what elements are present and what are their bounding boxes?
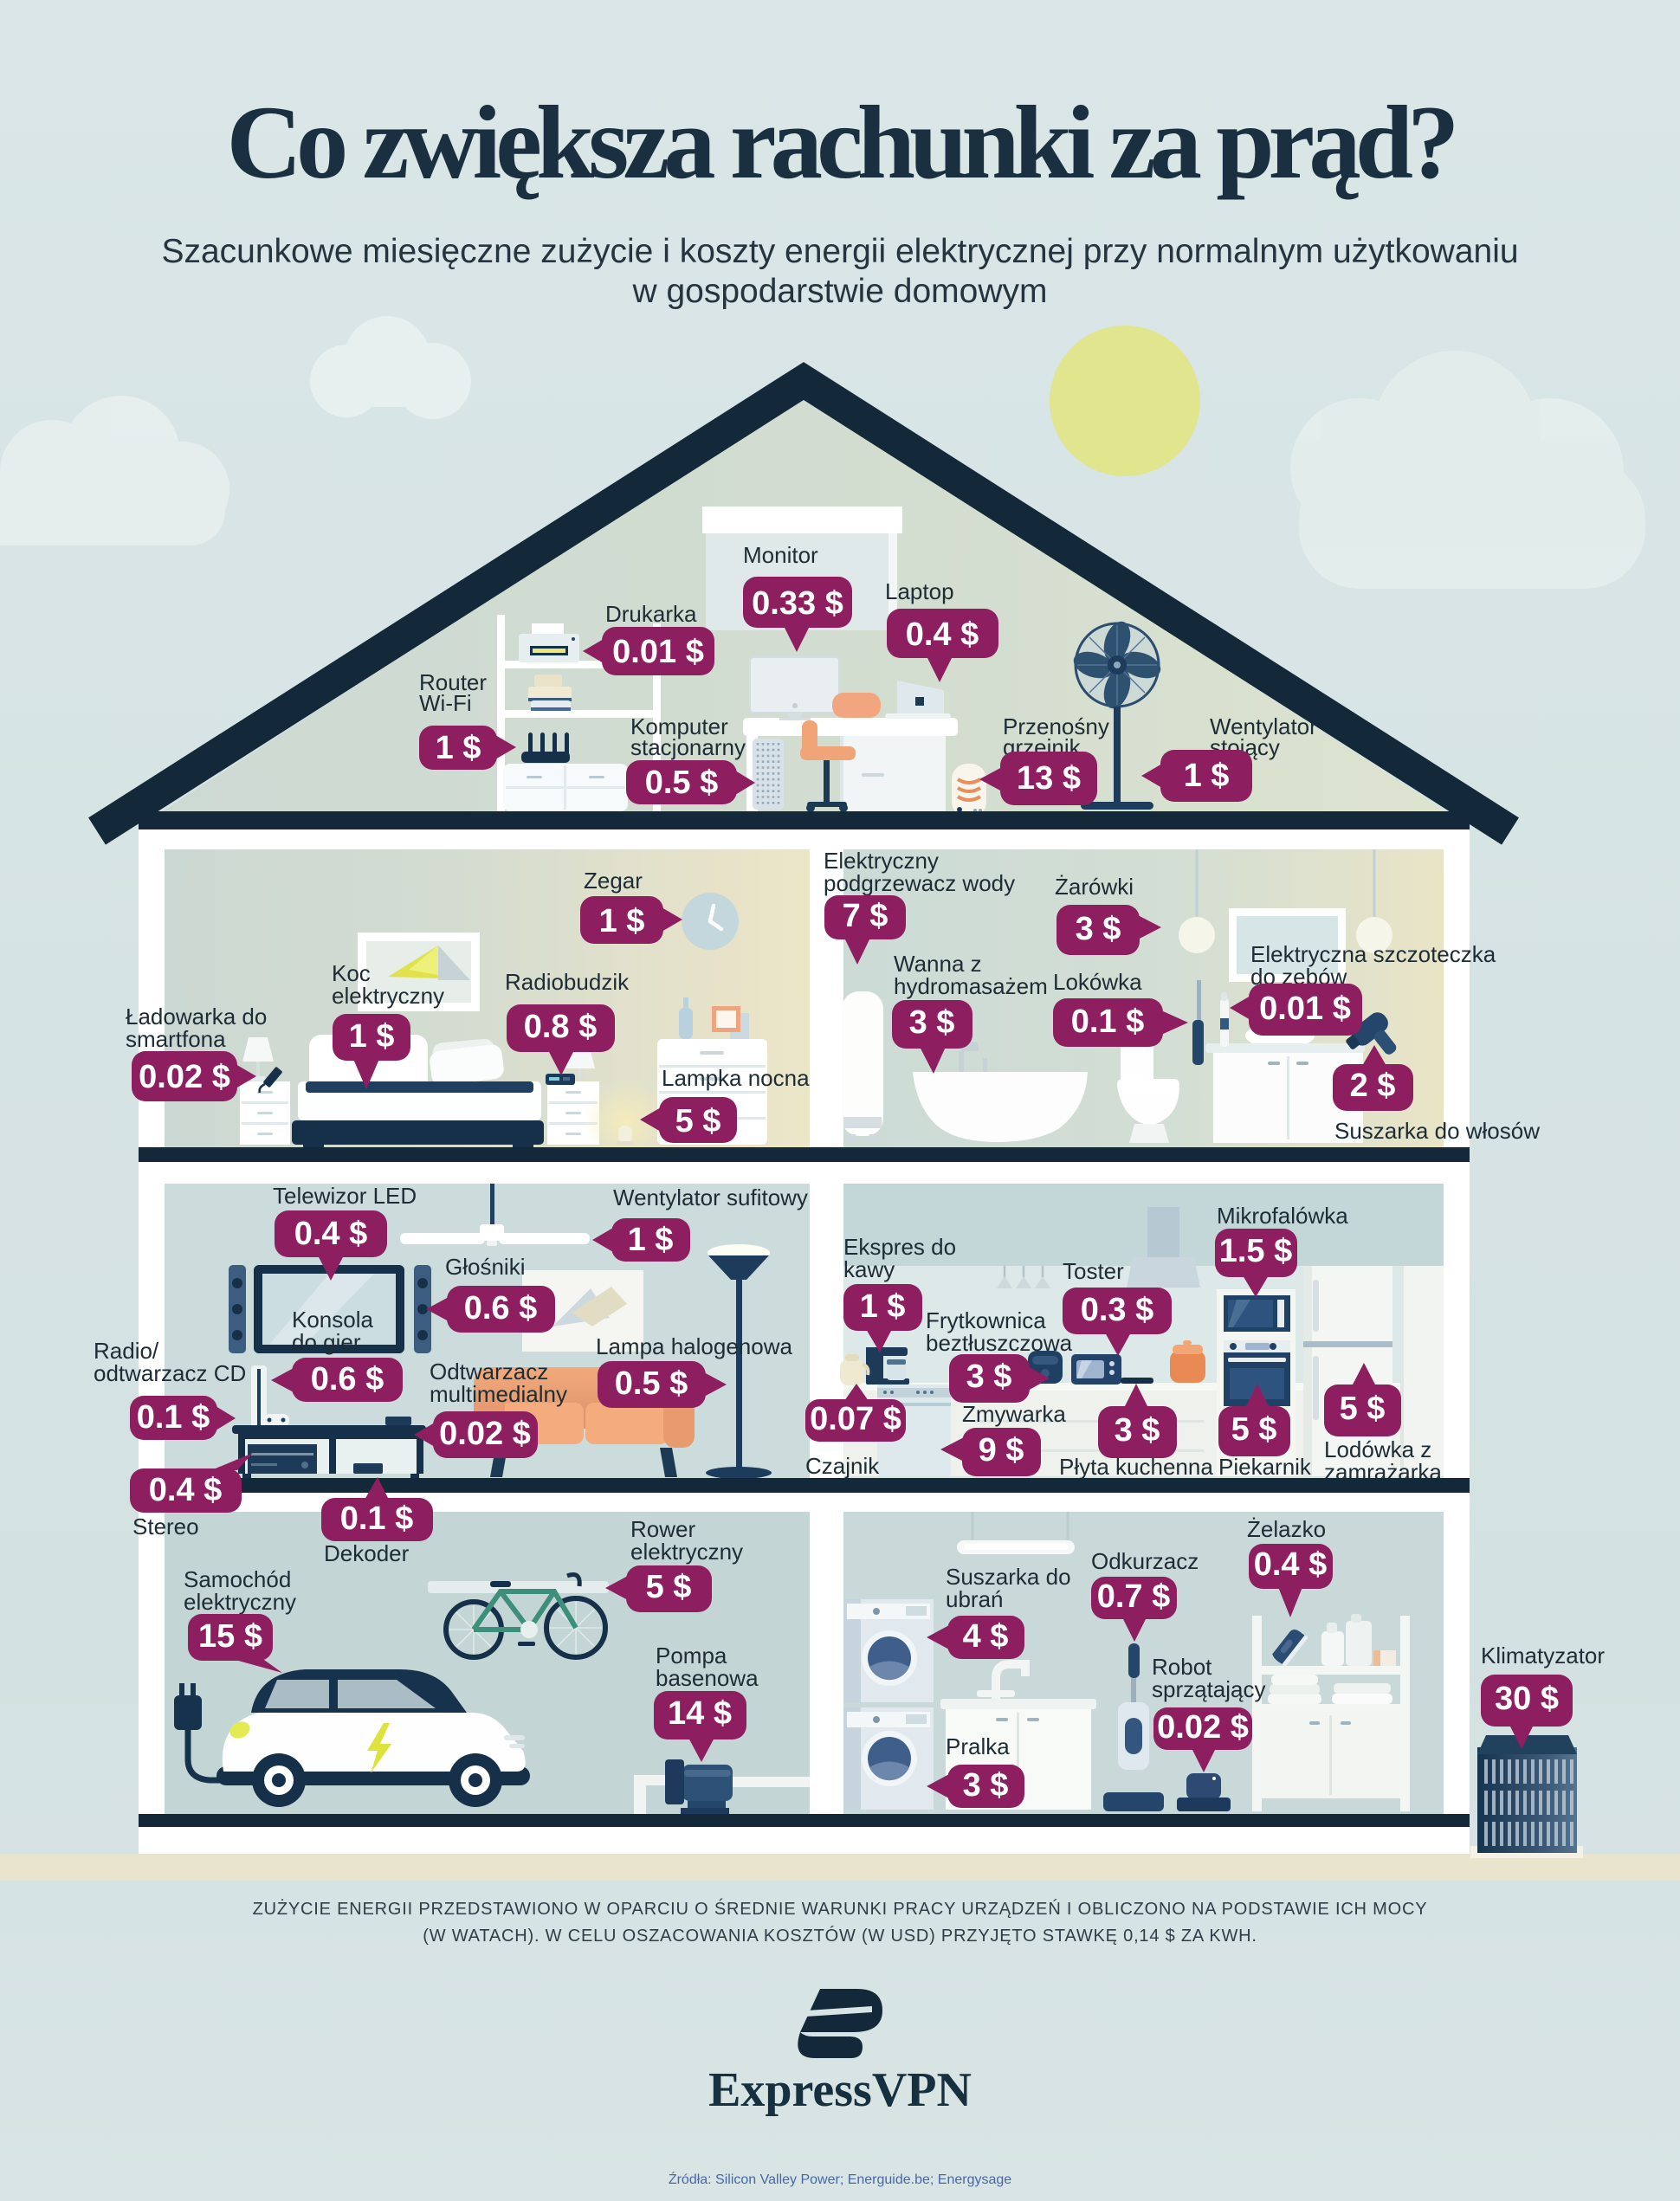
svg-text:Co zwiększa rachunki za prąd?: Co zwiększa rachunki za prąd? <box>226 85 1454 201</box>
svg-text:Lampa halogenowa: Lampa halogenowa <box>596 1333 792 1359</box>
svg-text:Lodówka zzamrażarką: Lodówka zzamrażarką <box>1324 1436 1442 1485</box>
svg-text:Laptop: Laptop <box>885 578 954 604</box>
svg-text:1 $: 1 $ <box>599 903 645 939</box>
svg-text:0.7 $: 0.7 $ <box>1097 1578 1171 1615</box>
svg-text:4 $: 4 $ <box>963 1618 1009 1655</box>
svg-text:Zmywarka: Zmywarka <box>962 1401 1066 1427</box>
svg-text:0.02 $: 0.02 $ <box>139 1059 230 1095</box>
svg-text:2 $: 2 $ <box>1350 1068 1396 1104</box>
svg-text:ZUŻYCIE ENERGII PRZEDSTAWIONO: ZUŻYCIE ENERGII PRZEDSTAWIONO W OPARCIU … <box>253 1898 1428 1919</box>
svg-text:0.4 $: 0.4 $ <box>294 1216 368 1252</box>
svg-text:0.02 $: 0.02 $ <box>1157 1709 1249 1746</box>
svg-text:7 $: 7 $ <box>843 898 888 934</box>
svg-text:9 $: 9 $ <box>979 1432 1024 1468</box>
svg-text:0.33 $: 0.33 $ <box>752 585 843 622</box>
svg-text:Drukarka: Drukarka <box>605 601 697 627</box>
svg-text:5 $: 5 $ <box>1231 1411 1277 1448</box>
svg-text:Telewizor LED: Telewizor LED <box>273 1183 417 1209</box>
svg-text:3 $: 3 $ <box>1076 911 1121 947</box>
svg-text:13 $: 13 $ <box>1017 760 1081 797</box>
svg-text:0.07 $: 0.07 $ <box>810 1401 901 1437</box>
svg-text:1 $: 1 $ <box>860 1288 906 1325</box>
svg-text:15 $: 15 $ <box>198 1618 262 1655</box>
svg-text:0.01 $: 0.01 $ <box>612 634 704 670</box>
svg-text:Źródła: Silicon Valley Power;: Źródła: Silicon Valley Power; Energuide.… <box>669 2171 1011 2187</box>
svg-text:Czajnik: Czajnik <box>805 1453 880 1479</box>
svg-text:5 $: 5 $ <box>675 1103 721 1139</box>
svg-text:Radiobudzik: Radiobudzik <box>505 969 630 995</box>
svg-text:3 $: 3 $ <box>966 1359 1012 1395</box>
svg-text:0.4 $: 0.4 $ <box>149 1472 223 1508</box>
svg-text:1.5 $: 1.5 $ <box>1219 1233 1293 1269</box>
svg-text:Żarówki: Żarówki <box>1055 874 1134 900</box>
svg-text:Pralka: Pralka <box>946 1733 1010 1759</box>
svg-text:Lokówka: Lokówka <box>1053 969 1142 995</box>
svg-text:0.5 $: 0.5 $ <box>645 765 719 801</box>
svg-text:0.4 $: 0.4 $ <box>906 616 979 653</box>
svg-text:Klimatyzator: Klimatyzator <box>1481 1643 1605 1668</box>
svg-text:Wentylator sufitowy: Wentylator sufitowy <box>613 1184 808 1210</box>
svg-text:Toster: Toster <box>1063 1258 1124 1284</box>
svg-text:Płyta kuchenna: Płyta kuchenna <box>1059 1454 1213 1480</box>
svg-text:5 $: 5 $ <box>1340 1391 1386 1427</box>
svg-text:Monitor: Monitor <box>743 542 818 568</box>
svg-text:Samochódelektryczny: Samochódelektryczny <box>184 1566 296 1615</box>
svg-text:Szacunkowe miesięczne zużycie: Szacunkowe miesięczne zużycie i koszty e… <box>161 233 1518 270</box>
svg-text:Dekoder: Dekoder <box>324 1540 410 1566</box>
svg-text:Lampka nocna: Lampka nocna <box>662 1065 810 1091</box>
svg-text:Odkurzacz: Odkurzacz <box>1091 1548 1199 1574</box>
svg-text:3 $: 3 $ <box>909 1004 955 1041</box>
svg-text:Suszarka do włosów: Suszarka do włosów <box>1334 1118 1540 1144</box>
svg-text:0.02 $: 0.02 $ <box>439 1416 531 1452</box>
svg-text:3 $: 3 $ <box>963 1767 1009 1804</box>
svg-text:0.1 $: 0.1 $ <box>137 1399 210 1436</box>
svg-text:0.3 $: 0.3 $ <box>1081 1292 1154 1328</box>
svg-text:(W WATACH). W CELU OSZACOWANIA: (W WATACH). W CELU OSZACOWANIA KOSZTÓW (… <box>423 1926 1257 1946</box>
svg-text:Głośniki: Głośniki <box>445 1254 525 1280</box>
svg-text:1 $: 1 $ <box>349 1018 395 1055</box>
svg-text:Piekarnik: Piekarnik <box>1218 1454 1312 1480</box>
svg-text:Stereo: Stereo <box>132 1514 199 1539</box>
svg-text:1 $: 1 $ <box>1184 758 1230 794</box>
svg-text:Odtwarzaczmultimedialny: Odtwarzaczmultimedialny <box>430 1359 567 1407</box>
svg-text:Zegar: Zegar <box>584 868 643 894</box>
svg-text:Mikrofalówka: Mikrofalówka <box>1217 1203 1348 1229</box>
svg-text:3 $: 3 $ <box>1115 1412 1160 1449</box>
svg-text:0.6 $: 0.6 $ <box>464 1290 538 1326</box>
svg-text:5 $: 5 $ <box>646 1569 692 1605</box>
svg-text:30 $: 30 $ <box>1495 1681 1559 1717</box>
svg-text:1 $: 1 $ <box>436 730 481 766</box>
svg-text:w gospodarstwie domowym: w gospodarstwie domowym <box>631 273 1047 310</box>
svg-text:0.1 $: 0.1 $ <box>340 1501 414 1537</box>
svg-text:0.5 $: 0.5 $ <box>615 1365 688 1402</box>
svg-text:1 $: 1 $ <box>628 1222 674 1258</box>
svg-text:14 $: 14 $ <box>668 1695 732 1732</box>
svg-text:0.4 $: 0.4 $ <box>1254 1546 1328 1583</box>
svg-text:0.1 $: 0.1 $ <box>1071 1004 1145 1040</box>
svg-text:ExpressVPN: ExpressVPN <box>708 2063 972 2117</box>
svg-text:0.01 $: 0.01 $ <box>1259 991 1351 1027</box>
svg-text:0.6 $: 0.6 $ <box>311 1361 384 1397</box>
svg-text:0.8 $: 0.8 $ <box>524 1009 598 1045</box>
svg-text:Żelazko: Żelazko <box>1247 1516 1326 1542</box>
